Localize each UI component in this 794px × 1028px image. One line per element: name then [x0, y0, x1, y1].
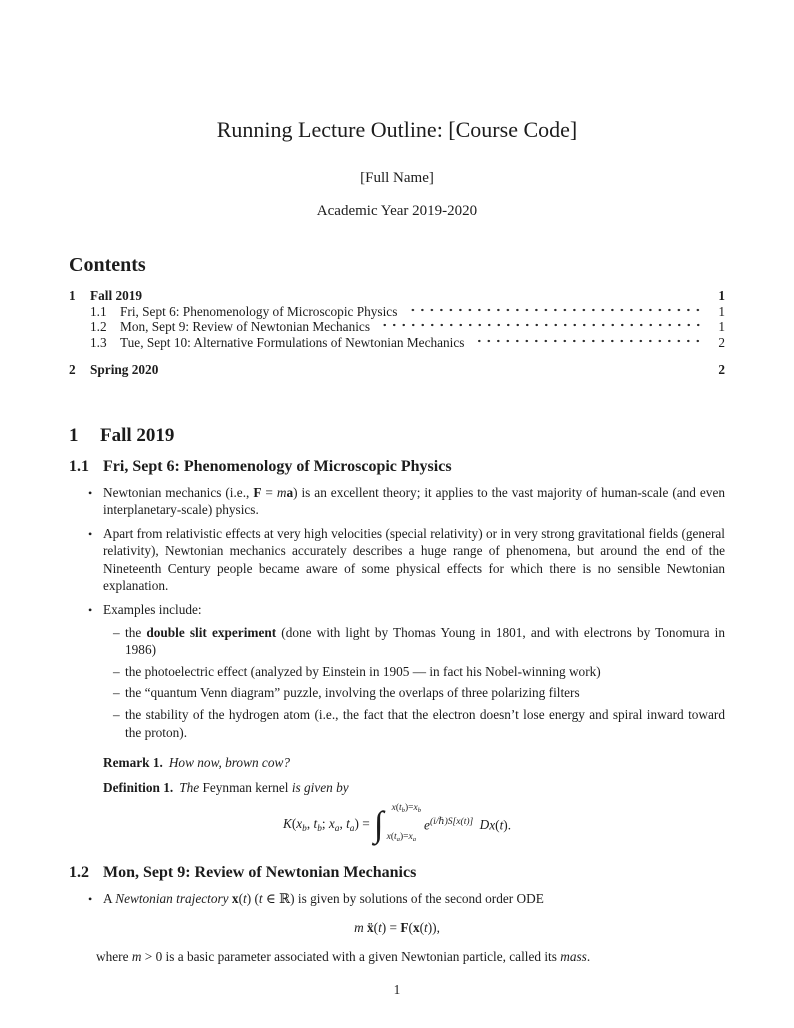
toc-entry-title: Fri, Sept 6: Phenomenology of Microscopi…: [120, 304, 397, 320]
integral-lower-limit: x(ta)=xa: [382, 832, 421, 845]
sub-list-item: the photoelectric effect (analyzed by Ei…: [103, 663, 725, 681]
toc-entry-number: 1.1: [90, 304, 120, 320]
sub-list-item-text: the photoelectric effect (analyzed by Ei…: [125, 663, 725, 681]
list-item: Examples include: the double slit experi…: [69, 601, 725, 745]
sub-list-item: the stability of the hydrogen atom (i.e.…: [103, 706, 725, 741]
toc-entry-number: 2: [69, 362, 90, 378]
toc-entry-number: 1.2: [90, 319, 120, 335]
sub-list-item-text: the stability of the hydrogen atom (i.e.…: [125, 706, 725, 741]
dot-leader: [472, 337, 703, 347]
integral-limits: x(tb)=xbx(ta)=xa: [384, 803, 421, 845]
dot-leader: [405, 306, 703, 316]
toc-entry-title: Spring 2020: [90, 362, 158, 378]
document-title: Running Lecture Outline: [Course Code]: [69, 117, 725, 143]
dot-leader: [378, 321, 703, 331]
toc-entry-page: 1: [709, 288, 725, 304]
sub-list-item-text: the “quantum Venn diagram” puzzle, invol…: [125, 684, 725, 702]
list-item-text: A Newtonian trajectory x(t) (t ∈ ℝ) is g…: [103, 890, 725, 909]
toc-entry-page: 1: [709, 319, 725, 335]
toc-entry-title: Mon, Sept 9: Review of Newtonian Mechani…: [120, 319, 370, 335]
remark-label: Remark 1.: [103, 755, 163, 770]
dash-icon: [103, 706, 125, 741]
document-author: [Full Name]: [69, 169, 725, 187]
sub-list: the double slit experiment (done with li…: [103, 624, 725, 742]
section-heading-fall-2019: 1Fall 2019: [69, 424, 725, 447]
document-date: Academic Year 2019-2020: [69, 202, 725, 220]
bullet-icon: [69, 525, 103, 595]
list-item-lead: Examples include:: [103, 601, 725, 619]
toc-entry-page: 1: [709, 304, 725, 320]
dash-icon: [103, 684, 125, 702]
feynman-kernel-equation: K(xb, tb; xa, ta) = ∫x(tb)=xbx(ta)=xae(i…: [69, 801, 725, 847]
list-item-text: Apart from relativistic effects at very …: [103, 525, 725, 595]
toc-entry-number: 1.3: [90, 335, 120, 351]
bullet-icon: [69, 601, 103, 745]
dot-leader: [150, 290, 703, 300]
newton-ode-equation: m ẍ(t) = F(x(t)),: [69, 919, 725, 937]
list-item: Newtonian mechanics (i.e., F = ma) is an…: [69, 484, 725, 519]
subsection-number: 1.2: [69, 863, 103, 882]
bullet-icon: [69, 484, 103, 519]
list-item-text: Newtonian mechanics (i.e., F = ma) is an…: [103, 484, 725, 519]
definition-text: The Feynman kernel is given by: [179, 780, 349, 795]
dot-leader: [166, 364, 703, 374]
subsection-heading-1-2: 1.2Mon, Sept 9: Review of Newtonian Mech…: [69, 863, 725, 882]
toc-entry-1-3: 1.3 Tue, Sept 10: Alternative Formulatio…: [69, 335, 725, 351]
toc-entry-page: 2: [709, 335, 725, 351]
page-number: 1: [0, 982, 794, 998]
table-of-contents: 1 Fall 2019 1 1.1 Fri, Sept 6: Phenomeno…: [69, 288, 725, 378]
definition-block: Definition 1.The Feynman kernel is given…: [103, 779, 725, 797]
dash-icon: [103, 663, 125, 681]
sub-list-item-text: the double slit experiment (done with li…: [125, 624, 725, 659]
integral-upper-limit: x(tb)=xb: [384, 803, 421, 816]
toc-entry-1-1: 1.1 Fri, Sept 6: Phenomenology of Micros…: [69, 304, 725, 320]
sub-list-item: the “quantum Venn diagram” puzzle, invol…: [103, 684, 725, 702]
toc-entry-page: 2: [709, 362, 725, 378]
continuation-paragraph: where m > 0 is a basic parameter associa…: [96, 948, 725, 966]
subsection-heading-1-1: 1.1Fri, Sept 6: Phenomenology of Microsc…: [69, 457, 725, 476]
list-item-text: Examples include: the double slit experi…: [103, 601, 725, 745]
toc-entry-title: Tue, Sept 10: Alternative Formulations o…: [120, 335, 464, 351]
toc-entry-title: Fall 2019: [90, 288, 142, 304]
document-page: Running Lecture Outline: [Course Code] […: [0, 0, 794, 1028]
toc-entry-number: 1: [69, 288, 90, 304]
subsection-title: Mon, Sept 9: Review of Newtonian Mechani…: [103, 864, 416, 881]
bullet-list: Newtonian mechanics (i.e., F = ma) is an…: [69, 484, 725, 746]
remark-text: How now, brown cow?: [169, 755, 290, 770]
toc-entry-spring-2020: 2 Spring 2020 2: [69, 362, 725, 378]
toc-entry-1-2: 1.2 Mon, Sept 9: Review of Newtonian Mec…: [69, 319, 725, 335]
toc-entry-fall-2019: 1 Fall 2019 1: [69, 288, 725, 304]
integral-group: ∫x(tb)=xbx(ta)=xa: [374, 803, 421, 845]
list-item: A Newtonian trajectory x(t) (t ∈ ℝ) is g…: [69, 890, 725, 909]
remark-block: Remark 1.How now, brown cow?: [103, 754, 725, 772]
dash-icon: [103, 624, 125, 659]
contents-heading: Contents: [69, 253, 725, 277]
definition-label: Definition 1.: [103, 780, 173, 795]
section-title: Fall 2019: [100, 425, 174, 446]
subsection-title: Fri, Sept 6: Phenomenology of Microscopi…: [103, 458, 452, 475]
sub-list-item: the double slit experiment (done with li…: [103, 624, 725, 659]
section-number: 1: [69, 424, 100, 447]
bullet-list: A Newtonian trajectory x(t) (t ∈ ℝ) is g…: [69, 890, 725, 909]
equation-integrand: e(i/ℏ)S[x(t)] Dx(t).: [424, 816, 511, 833]
equation-lhs: K(xb, tb; xa, ta) =: [283, 816, 370, 834]
bullet-icon: [69, 890, 103, 909]
subsection-number: 1.1: [69, 457, 103, 476]
list-item: Apart from relativistic effects at very …: [69, 525, 725, 595]
